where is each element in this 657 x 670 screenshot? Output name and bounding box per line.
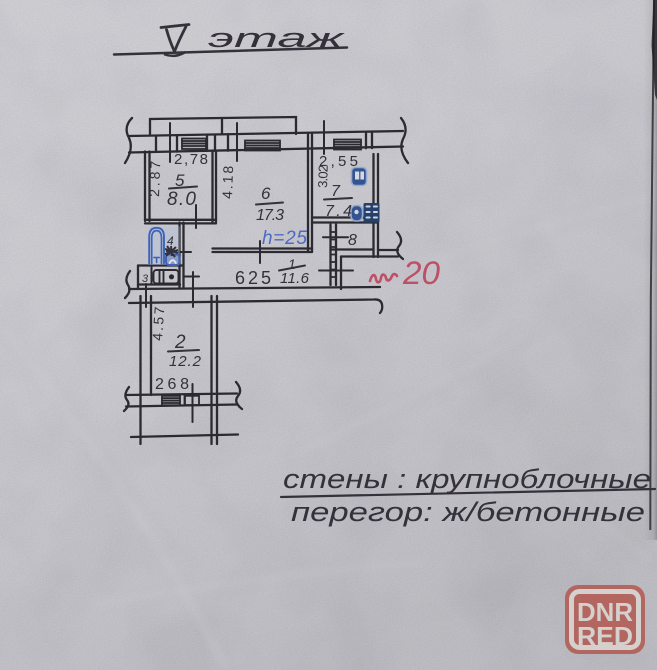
svg-text:625: 625 — [235, 268, 271, 288]
svg-text:8: 8 — [348, 232, 357, 249]
svg-text:2,78: 2,78 — [174, 151, 208, 168]
svg-text:4.57: 4.57 — [149, 306, 167, 341]
svg-text:7: 7 — [331, 183, 341, 200]
svg-text:4.18: 4.18 — [219, 165, 236, 199]
svg-text:3.02: 3.02 — [315, 165, 331, 189]
svg-text:11.6: 11.6 — [280, 270, 310, 287]
svg-text:h=25: h=25 — [262, 228, 307, 249]
svg-text:перегор: ж/бетонные: перегор: ж/бетонные — [291, 497, 645, 527]
svg-text:RED: RED — [577, 621, 633, 651]
svg-text:3: 3 — [142, 273, 149, 285]
svg-text:2.87: 2.87 — [146, 160, 163, 197]
svg-text:12.2: 12.2 — [169, 353, 202, 370]
svg-text:268: 268 — [155, 376, 189, 393]
svg-text:20: 20 — [402, 255, 440, 291]
svg-text:7.4: 7.4 — [325, 203, 352, 220]
svg-text:17.3: 17.3 — [256, 207, 284, 224]
svg-text:8.0: 8.0 — [167, 189, 196, 210]
svg-text:этаж: этаж — [208, 23, 346, 53]
svg-text:6: 6 — [261, 184, 271, 203]
